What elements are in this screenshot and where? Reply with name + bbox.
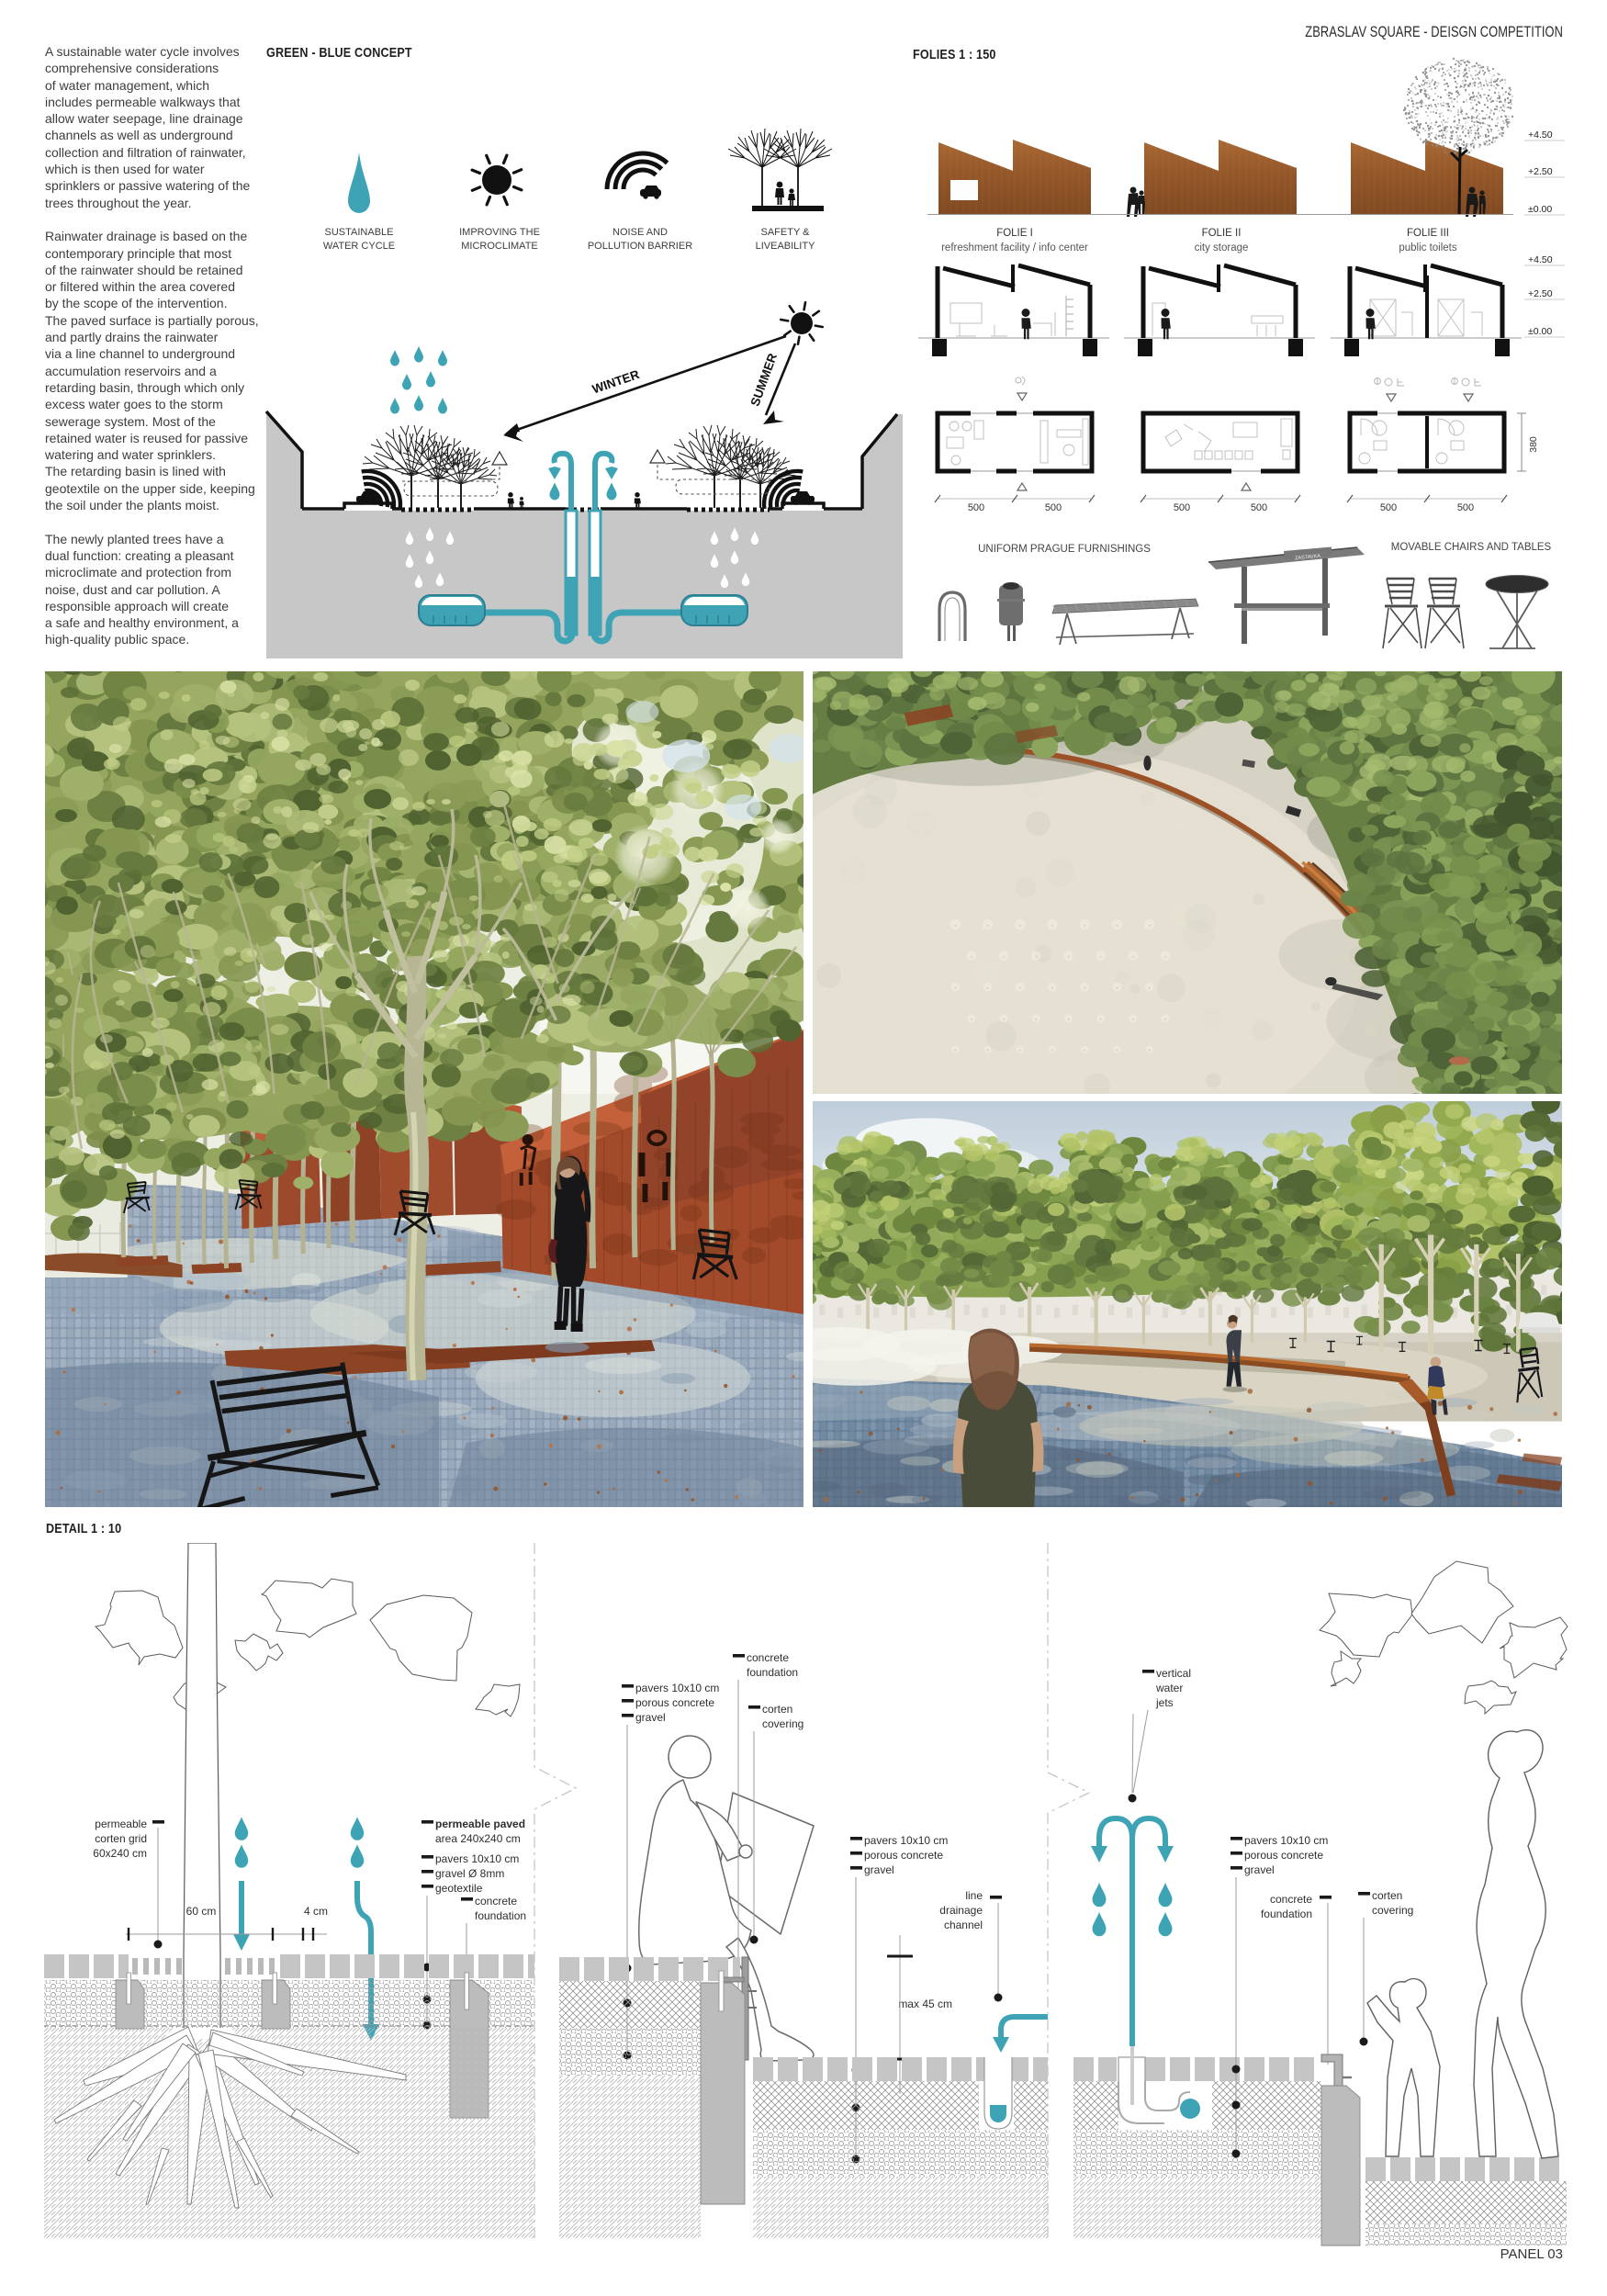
svg-text:500: 500 (1380, 502, 1397, 513)
svg-text:refreshment facility / info ce: refreshment facility / info center (941, 242, 1088, 253)
svg-text:FOLIE II: FOLIE II (1202, 228, 1242, 239)
svg-text:WINTER: WINTER (590, 367, 641, 397)
svg-text:city storage: city storage (1195, 242, 1249, 253)
svg-text:+4.50: +4.50 (1528, 129, 1553, 141)
svg-text:±0.00: ±0.00 (1528, 326, 1552, 337)
svg-text:IMPROVING THE: IMPROVING THE (459, 227, 540, 238)
svg-text:WATER CYCLE: WATER CYCLE (323, 241, 395, 252)
svg-text:500: 500 (1045, 502, 1062, 513)
svg-text:±0.00: ±0.00 (1528, 204, 1552, 215)
svg-text:+2.50: +2.50 (1528, 288, 1553, 299)
svg-text:500: 500 (968, 502, 984, 513)
svg-text:public toilets: public toilets (1399, 242, 1457, 253)
svg-text:NOISE AND: NOISE AND (612, 227, 668, 238)
svg-text:UNIFORM PRAGUE FURNISHINGS: UNIFORM PRAGUE FURNISHINGS (978, 544, 1151, 555)
svg-text:500: 500 (1251, 502, 1267, 513)
svg-text:FOLIE III: FOLIE III (1407, 228, 1449, 239)
svg-text:ZASTAVKA: ZASTAVKA (1295, 554, 1321, 561)
svg-text:SAFETY &: SAFETY & (761, 227, 811, 238)
svg-text:LIVEABILITY: LIVEABILITY (756, 241, 815, 252)
svg-text:MICROCLIMATE: MICROCLIMATE (461, 241, 538, 252)
svg-text:500: 500 (1457, 502, 1474, 513)
svg-text:+4.50: +4.50 (1528, 254, 1553, 265)
svg-text:FOLIE I: FOLIE I (996, 228, 1033, 239)
svg-text:MOVABLE CHAIRS AND TABLES: MOVABLE CHAIRS AND TABLES (1391, 542, 1552, 553)
svg-text:SUSTAINABLE: SUSTAINABLE (325, 227, 394, 238)
svg-text:+2.50: +2.50 (1528, 166, 1553, 177)
svg-text:SUMMER: SUMMER (747, 351, 780, 408)
svg-text:POLLUTION BARRIER: POLLUTION BARRIER (588, 241, 692, 252)
svg-text:380: 380 (1528, 436, 1539, 453)
svg-text:500: 500 (1174, 502, 1190, 513)
